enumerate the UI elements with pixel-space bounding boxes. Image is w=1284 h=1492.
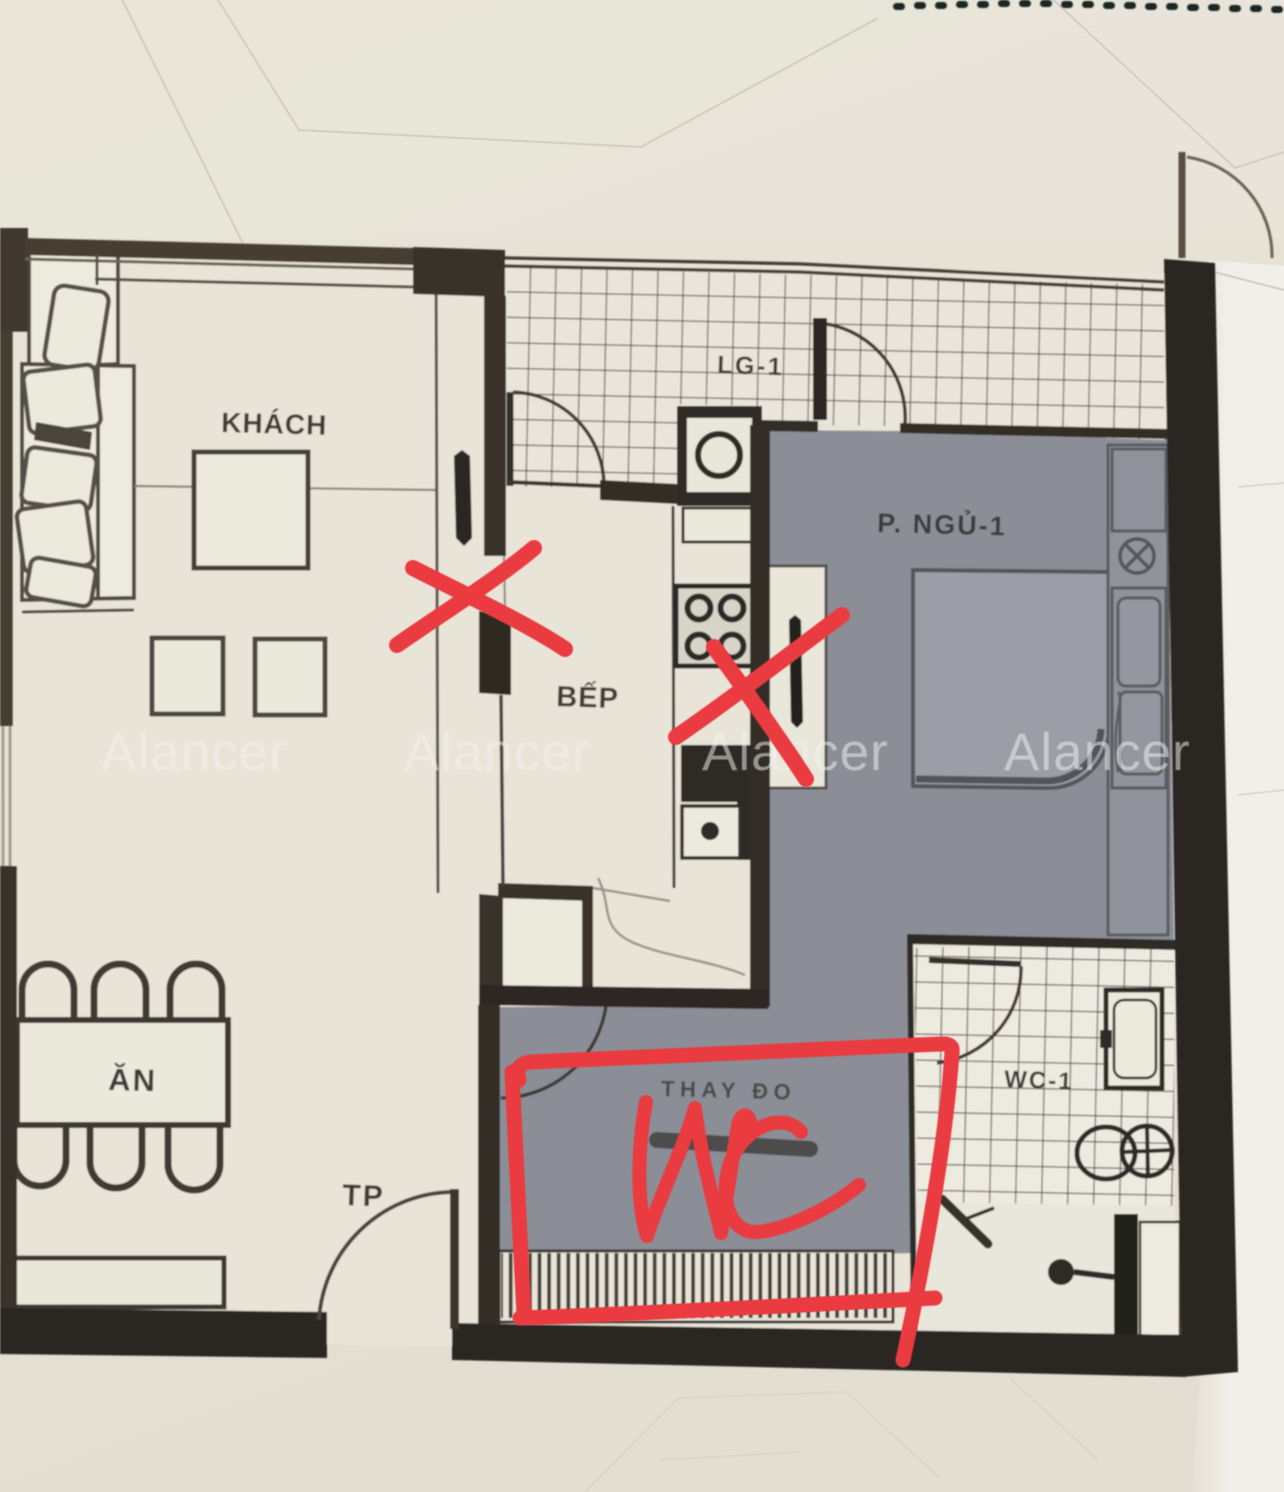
svg-text:LG-1: LG-1 xyxy=(717,351,785,381)
svg-text:Alancer: Alancer xyxy=(404,723,591,782)
svg-text:TP: TP xyxy=(342,1179,385,1213)
svg-text:Alancer: Alancer xyxy=(101,723,288,782)
svg-text:ĂN: ĂN xyxy=(108,1062,158,1098)
svg-text:Alancer: Alancer xyxy=(1004,723,1191,782)
svg-text:WC-1: WC-1 xyxy=(1004,1066,1074,1095)
svg-text:KHÁCH: KHÁCH xyxy=(221,407,328,441)
svg-text:THAY ĐO: THAY ĐO xyxy=(661,1076,797,1105)
svg-text:BẾP: BẾP xyxy=(556,679,620,715)
svg-text:P. NGỦ-1: P. NGỦ-1 xyxy=(877,506,1007,541)
